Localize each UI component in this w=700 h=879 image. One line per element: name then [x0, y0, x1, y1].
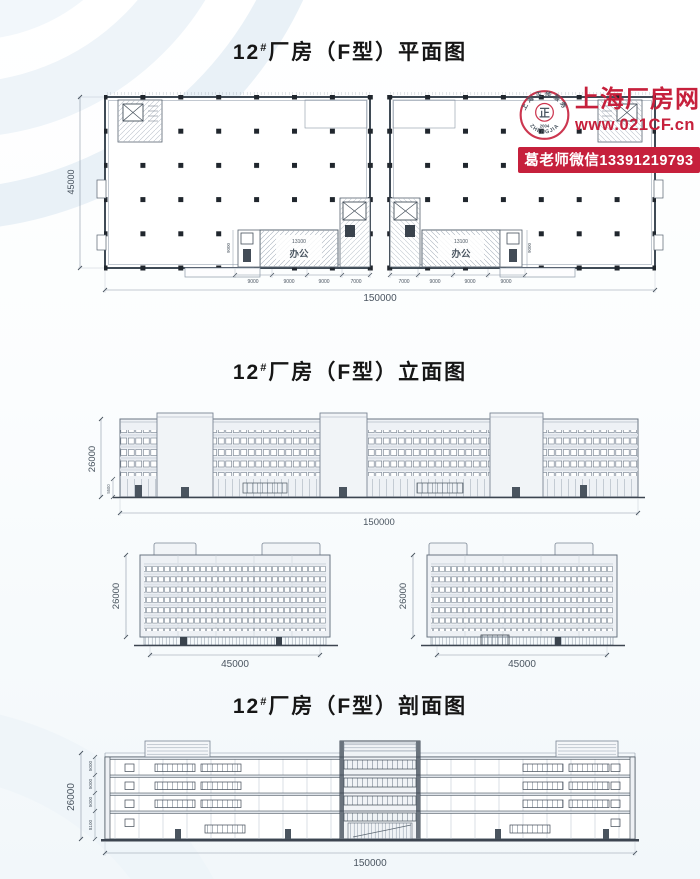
- section-drawing: 5000 5000 5000 8100 26000 150000: [55, 727, 655, 875]
- site-logo: 正 2004 上海正佳服务 ZHENGJIA 上海厂房网 www.021CF.c…: [518, 86, 700, 173]
- side-elevation-right-drawing: 26000 45000: [385, 535, 650, 675]
- section-height-label: 26000: [66, 783, 77, 811]
- plan-elevator-core: [340, 198, 370, 267]
- plan-total-width-label: 150000: [363, 293, 397, 304]
- plan-dim: 7000: [350, 279, 361, 285]
- elevation-title: 12#厂房（F型）立面图: [0, 356, 700, 386]
- seal-year: 2004: [540, 123, 550, 128]
- plan-title-text: 厂房（F型）平面图: [268, 41, 467, 64]
- front-elevation-building: [113, 413, 645, 498]
- section-floor-dim: 5000: [88, 778, 93, 789]
- section-floor-dim: 8100: [88, 819, 93, 830]
- side-elevation-left-drawing: 26000 45000: [98, 535, 363, 675]
- plan-left-office-width-label: 13100: [292, 239, 306, 245]
- svg-text:正: 正: [539, 107, 550, 119]
- plan-right-office-width-label: 13100: [454, 239, 468, 245]
- elevation-title-number: 12: [233, 361, 260, 384]
- seal-icon: 正 2004 上海正佳服务 ZHENGJIA: [518, 86, 571, 144]
- side-right-height-label: 26000: [398, 583, 409, 609]
- section-floor-dim: 5000: [88, 760, 93, 771]
- front-elevation-width-label: 150000: [363, 517, 395, 528]
- elevation-title-text: 厂房（F型）立面图: [268, 361, 467, 384]
- seal-center-char: 正: [539, 107, 550, 119]
- plan-depth-label: 45000: [66, 169, 76, 194]
- plan-dim: 9000: [283, 279, 294, 285]
- plan-dim: 7000: [398, 279, 409, 285]
- site-name: 上海厂房网: [575, 86, 700, 114]
- section-title-number: 12: [233, 695, 260, 718]
- plan-stair-core: [118, 100, 162, 142]
- section-building: [101, 741, 639, 842]
- plan-dim: 9000: [318, 279, 329, 285]
- plan-right-office-label: 办公: [451, 248, 471, 260]
- side-left-height-label: 26000: [111, 583, 122, 609]
- plan-dim: 9000: [500, 279, 511, 285]
- plan-left-office-label: 办公: [289, 248, 309, 260]
- site-url: www.021CF.cn: [575, 116, 700, 135]
- front-elevation-height-label: 26000: [87, 446, 98, 472]
- side-elevation-left-building: [134, 543, 338, 646]
- front-elevation-ground-label: 5500: [106, 484, 111, 494]
- section-central-tower: [340, 741, 420, 839]
- section-title: 12#厂房（F型）剖面图: [0, 690, 700, 720]
- side-right-width-label: 45000: [508, 659, 536, 670]
- side-left-width-label: 45000: [221, 659, 249, 670]
- section-floor-dim: 5000: [88, 796, 93, 807]
- plan-dim: 9000: [429, 279, 440, 285]
- plan-title: 12#厂房（F型）平面图: [0, 36, 700, 66]
- front-elevation-drawing: 26000 5500 150000: [75, 403, 655, 533]
- plan-dim: 9000: [247, 279, 258, 285]
- plan-left-office-depth-label: 9000: [226, 242, 231, 253]
- wechat-banner: 葛老师微信13391219793: [518, 147, 700, 173]
- plan-left-building: [97, 92, 376, 277]
- section-width-label: 150000: [353, 858, 387, 869]
- plan-right-office-depth-label: 9000: [527, 242, 532, 253]
- side-elevation-right-building: [421, 543, 625, 646]
- plan-title-number: 12: [233, 41, 260, 64]
- section-title-text: 厂房（F型）剖面图: [268, 695, 467, 718]
- plan-dim: 9000: [464, 279, 475, 285]
